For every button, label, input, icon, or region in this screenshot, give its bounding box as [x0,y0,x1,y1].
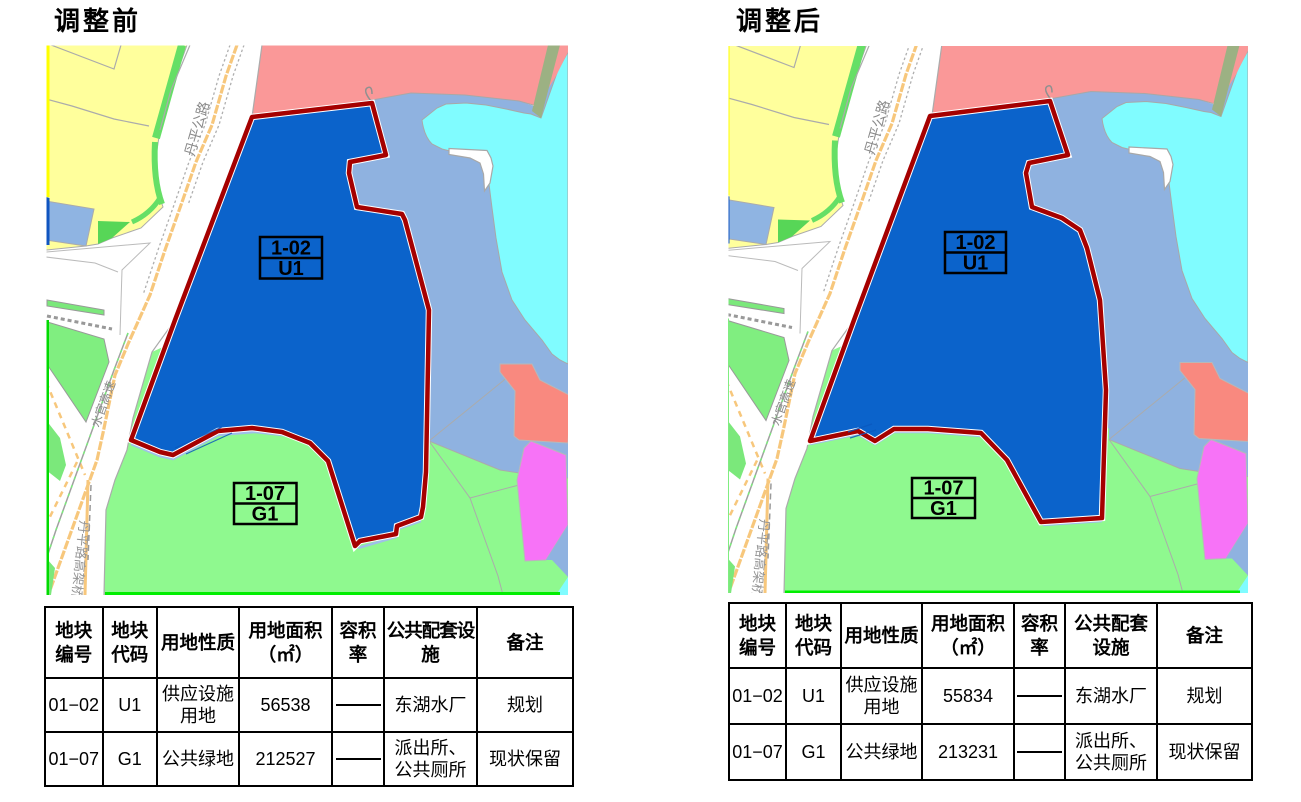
svg-text:1-07: 1-07 [923,478,963,500]
svg-text:G1: G1 [252,504,279,526]
svg-text:1-07: 1-07 [245,483,285,505]
svg-text:U1: U1 [278,258,304,280]
svg-text:1-02: 1-02 [955,232,995,254]
svg-text:U1: U1 [963,253,989,275]
svg-text:1-02: 1-02 [271,238,311,260]
svg-text:G1: G1 [930,498,957,520]
